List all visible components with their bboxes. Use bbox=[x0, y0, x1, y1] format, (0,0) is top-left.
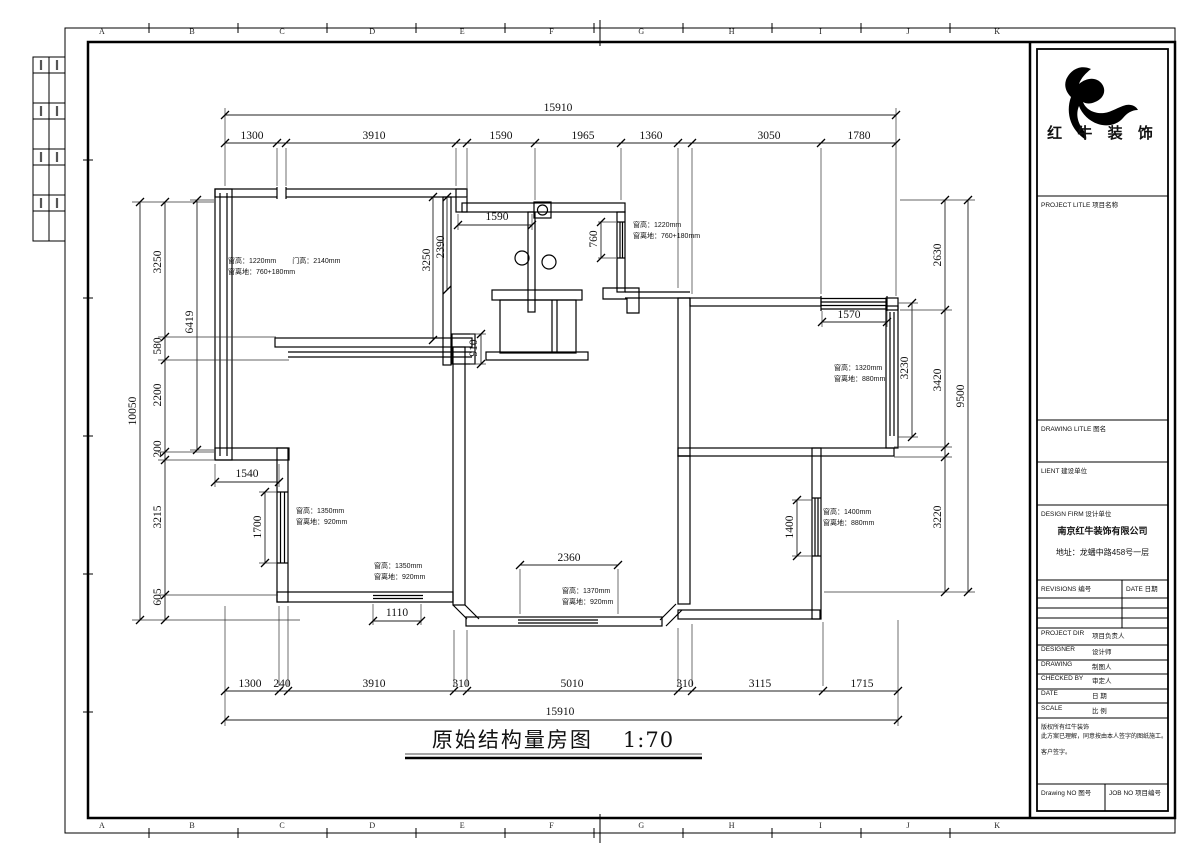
dim-label: 310 bbox=[676, 678, 693, 690]
drawing-by-label: DRAWING bbox=[1041, 661, 1072, 668]
dim-label: 1570 bbox=[838, 309, 861, 321]
drawing-title: 原始结构量房图1:70 bbox=[432, 724, 674, 754]
copyright-note: 版权所有红牛装饰 bbox=[1041, 722, 1089, 731]
dim-label: 1700 bbox=[252, 516, 264, 539]
grid-letter: B bbox=[189, 821, 194, 830]
title-block-rules bbox=[1037, 196, 1168, 811]
dim-label: 3220 bbox=[932, 506, 944, 529]
dim-label: 3250 bbox=[152, 251, 164, 274]
grid-letters-bottom: ABCDEFGHIJK bbox=[99, 821, 1000, 830]
designer-cn: 设计师 bbox=[1092, 646, 1112, 656]
dim-label: 15910 bbox=[546, 706, 575, 718]
dim-label: 3250 bbox=[421, 249, 433, 272]
dim-label: 1110 bbox=[386, 607, 408, 619]
extension-lines bbox=[132, 108, 975, 726]
date-label: DATE bbox=[1041, 690, 1058, 697]
checked-by-label: CHECKED BY bbox=[1041, 675, 1083, 682]
grid-letter: A bbox=[99, 821, 105, 830]
window-annotation: 窗高：1220mm门高：2140mm 窗离地：760+180mm bbox=[228, 257, 340, 279]
grid-letter: C bbox=[279, 27, 284, 36]
walls bbox=[215, 187, 898, 626]
project-title-label: PROJECT LITLE 项目名称 bbox=[1041, 199, 1118, 209]
company-address: 地址：龙蟠中路458号一层 bbox=[1037, 547, 1168, 558]
dim-label: 3910 bbox=[363, 130, 386, 142]
dim-label: 1300 bbox=[239, 678, 262, 690]
grid-letter: J bbox=[906, 27, 909, 36]
window-annotation: 窗高：1320mm 窗离地：880mm bbox=[834, 364, 885, 386]
checked-by-cn: 审定人 bbox=[1092, 675, 1112, 685]
grid-letter: H bbox=[729, 821, 735, 830]
company-name: 南京红牛装饰有限公司 bbox=[1037, 524, 1168, 537]
dim-label: 1360 bbox=[640, 130, 663, 142]
dim-label: 1965 bbox=[572, 130, 595, 142]
drawing-by-cn: 制图人 bbox=[1092, 661, 1112, 671]
grid-letter: D bbox=[369, 821, 375, 830]
dim-label: 3230 bbox=[899, 357, 911, 380]
floor-plan-drawing bbox=[0, 0, 1200, 844]
design-firm-label: DESIGN FIRM 设计单位 bbox=[1041, 508, 1111, 518]
drawing-no-label: Drawing NO 图号 bbox=[1041, 787, 1091, 797]
dim-label: 6419 bbox=[184, 311, 196, 334]
dim-label: 2390 bbox=[435, 236, 447, 259]
grid-letter: G bbox=[638, 27, 644, 36]
project-dir-cn: 项目负责人 bbox=[1092, 630, 1125, 640]
dim-label: 1300 bbox=[241, 130, 264, 142]
dimension-lines bbox=[140, 115, 968, 720]
dim-label: 1590 bbox=[486, 211, 509, 223]
grid-letter: C bbox=[279, 821, 284, 830]
grid-letter: H bbox=[729, 27, 735, 36]
scale-cn: 比 例 bbox=[1092, 705, 1107, 715]
job-no-label: JOB NO 项目编号 bbox=[1109, 787, 1161, 797]
dim-label: 1400 bbox=[784, 516, 796, 539]
drawing-sheet: ABCDEFGHIJK ABCDEFGHIJK 15910 1300 3910 … bbox=[0, 0, 1200, 844]
window-annotation: 窗高：1350mm 窗离地：920mm bbox=[374, 562, 425, 584]
drawing-scale: 1:70 bbox=[623, 728, 674, 752]
dim-label: 240 bbox=[273, 678, 290, 690]
title-underline bbox=[405, 754, 702, 758]
grid-letter: K bbox=[994, 821, 1000, 830]
grid-letter: F bbox=[549, 27, 553, 36]
dim-label: 9500 bbox=[955, 385, 967, 408]
dim-label: 15910 bbox=[544, 102, 573, 114]
grid-letter: E bbox=[460, 27, 465, 36]
grid-letter: B bbox=[189, 27, 194, 36]
grid-letter: J bbox=[906, 821, 909, 830]
dim-label: 2630 bbox=[932, 244, 944, 267]
dim-label: 310 bbox=[452, 678, 469, 690]
grid-letter: I bbox=[819, 821, 822, 830]
date-cn: 日 期 bbox=[1092, 690, 1107, 700]
dim-label: 1590 bbox=[490, 130, 513, 142]
dim-label: 200 bbox=[152, 440, 164, 457]
grid-letter: A bbox=[99, 27, 105, 36]
dim-label: 3910 bbox=[363, 678, 386, 690]
grid-letters-top: ABCDEFGHIJK bbox=[99, 27, 1000, 36]
grid-letter: E bbox=[460, 821, 465, 830]
dim-label: 605 bbox=[152, 588, 164, 605]
dim-label: 760 bbox=[588, 230, 600, 247]
grid-letter: D bbox=[369, 27, 375, 36]
grid-letter: G bbox=[638, 821, 644, 830]
dim-label: 10050 bbox=[127, 397, 139, 426]
grid-letter: I bbox=[819, 27, 822, 36]
dim-label: 910 bbox=[468, 339, 480, 356]
drawing-title-label: DRAWING LITLE 图名 bbox=[1041, 423, 1106, 433]
window-annotation: 窗高：1220mm 窗离地：760+180mm bbox=[633, 221, 700, 243]
dim-label: 580 bbox=[152, 337, 164, 354]
dim-label: 1540 bbox=[236, 468, 259, 480]
window-annotation: 窗高：1350mm 窗离地：920mm bbox=[296, 507, 347, 529]
dim-label: 1780 bbox=[848, 130, 871, 142]
scale-label: SCALE bbox=[1041, 705, 1062, 712]
dim-label: 1715 bbox=[851, 678, 874, 690]
date-column-label: DATE 日期 bbox=[1126, 583, 1158, 593]
signature-strip bbox=[33, 57, 65, 241]
dim-label: 3420 bbox=[932, 369, 944, 392]
revisions-label: REVISIONS 编号 bbox=[1041, 583, 1091, 593]
grid-letter: K bbox=[994, 27, 1000, 36]
dim-label: 2200 bbox=[152, 384, 164, 407]
window-annotation: 窗高：1400mm 窗离地：880mm bbox=[823, 508, 874, 530]
project-dir-label: PROJECT DIR bbox=[1041, 630, 1084, 637]
dim-label: 3215 bbox=[152, 506, 164, 529]
dim-label: 3050 bbox=[758, 130, 781, 142]
client-signature-note: 客户签字。 bbox=[1041, 747, 1071, 756]
client-label: LIENT 建设单位 bbox=[1041, 465, 1087, 475]
agreement-note: 此方案已理解，同意按由本人签字的图纸施工。 bbox=[1041, 731, 1167, 740]
grid-letter: F bbox=[549, 821, 553, 830]
designer-label: DESIGNER bbox=[1041, 646, 1075, 653]
dim-label: 3115 bbox=[749, 678, 772, 690]
window-annotation: 窗高：1370mm 窗离地：920mm bbox=[562, 587, 613, 609]
brand-name: 红 牛 装 饰 bbox=[1037, 122, 1168, 143]
dim-label: 2360 bbox=[558, 552, 581, 564]
dim-label: 5010 bbox=[561, 678, 584, 690]
